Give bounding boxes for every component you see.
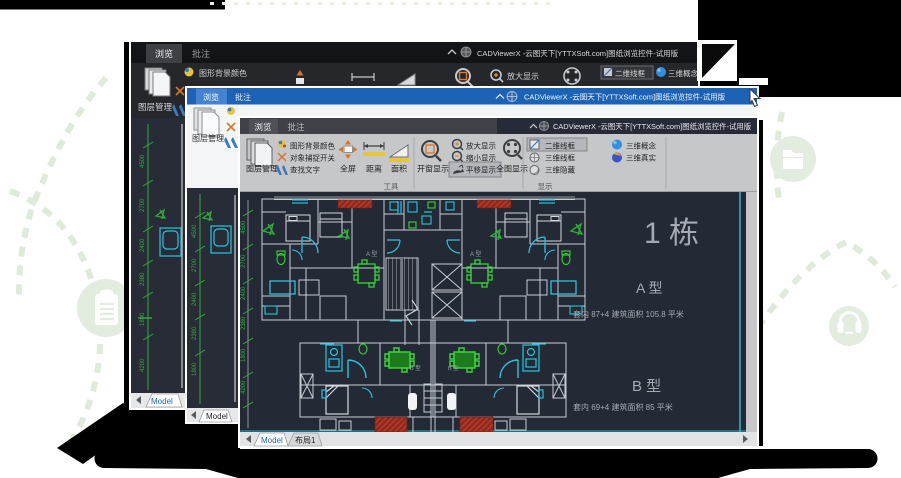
svg-text:2380: 2380 bbox=[140, 272, 146, 286]
svg-text:图形背景颜色: 图形背景颜色 bbox=[290, 141, 335, 151]
svg-text:浏览: 浏览 bbox=[254, 122, 271, 132]
svg-text:二维线框: 二维线框 bbox=[545, 141, 575, 151]
svg-text:B 型: B 型 bbox=[448, 364, 459, 372]
svg-text:CADViewerX -云图天下[YTTXSoft.com]: CADViewerX -云图天下[YTTXSoft.com]图纸浏览控件-试用版 bbox=[553, 122, 752, 131]
svg-text:1800: 1800 bbox=[140, 312, 146, 326]
svg-text:Model: Model bbox=[261, 436, 283, 445]
svg-text:平移显示: 平移显示 bbox=[466, 165, 496, 175]
svg-text:批注: 批注 bbox=[287, 122, 305, 132]
svg-text:CADViewerX -云图天下[YTTXSoft.com]: CADViewerX -云图天下[YTTXSoft.com]图纸浏览控件-试用版 bbox=[524, 92, 726, 102]
svg-text:三维真实: 三维真实 bbox=[626, 153, 656, 163]
svg-text:2700: 2700 bbox=[241, 254, 247, 268]
svg-text:缩小显示: 缩小显示 bbox=[466, 153, 496, 163]
svg-text:2400: 2400 bbox=[192, 292, 198, 306]
svg-text:Model: Model bbox=[151, 397, 173, 406]
svg-text:面积: 面积 bbox=[391, 164, 407, 174]
svg-text:B 型: B 型 bbox=[410, 364, 421, 372]
svg-text:A 型: A 型 bbox=[470, 250, 481, 258]
svg-text:二维线框: 二维线框 bbox=[615, 68, 645, 78]
svg-text:布局1: 布局1 bbox=[295, 435, 316, 445]
svg-text:2700: 2700 bbox=[140, 198, 146, 212]
svg-text:放大显示: 放大显示 bbox=[466, 141, 496, 151]
svg-text:浏览: 浏览 bbox=[203, 92, 219, 102]
svg-text:图层管理: 图层管理 bbox=[138, 102, 173, 112]
svg-text:三维隐藏: 三维隐藏 bbox=[545, 165, 575, 175]
svg-text:图形背景颜色: 图形背景颜色 bbox=[199, 68, 247, 78]
svg-text:全屏: 全屏 bbox=[340, 164, 356, 174]
svg-text:B 型: B 型 bbox=[632, 378, 661, 395]
svg-text:1 栋: 1 栋 bbox=[644, 217, 699, 250]
svg-text:工具: 工具 bbox=[384, 182, 399, 191]
svg-text:批注: 批注 bbox=[192, 48, 210, 59]
svg-text:CADViewerX -云图天下[YTTXSoft.com]: CADViewerX -云图天下[YTTXSoft.com]图纸浏览控件-试用版 bbox=[477, 48, 679, 58]
svg-text:图层管理: 图层管理 bbox=[192, 133, 224, 143]
svg-text:三维线框: 三维线框 bbox=[545, 153, 575, 163]
svg-text:Model: Model bbox=[206, 412, 228, 421]
svg-text:2700: 2700 bbox=[192, 258, 198, 272]
svg-text:A 型: A 型 bbox=[636, 280, 662, 296]
svg-text:2400: 2400 bbox=[140, 238, 146, 252]
svg-text:批注: 批注 bbox=[235, 92, 251, 102]
svg-text:4200: 4200 bbox=[241, 380, 247, 394]
svg-text:距离: 距离 bbox=[366, 164, 382, 174]
svg-text:放大显示: 放大显示 bbox=[507, 71, 539, 81]
svg-text:4500: 4500 bbox=[140, 154, 146, 168]
svg-text:三维概念: 三维概念 bbox=[626, 141, 656, 151]
svg-text:4500: 4500 bbox=[241, 220, 247, 234]
svg-text:查找文字: 查找文字 bbox=[290, 165, 320, 175]
svg-text:开窗显示: 开窗显示 bbox=[417, 164, 449, 174]
svg-text:A 型: A 型 bbox=[366, 250, 377, 258]
svg-text:2380: 2380 bbox=[241, 316, 247, 330]
svg-text:图层管理: 图层管理 bbox=[246, 164, 278, 174]
svg-text:4200: 4200 bbox=[140, 358, 146, 372]
svg-text:显示: 显示 bbox=[538, 182, 553, 191]
svg-text:2400: 2400 bbox=[241, 286, 247, 300]
svg-text:2380: 2380 bbox=[192, 326, 198, 340]
svg-text:三维概念: 三维概念 bbox=[668, 68, 698, 78]
svg-text:4500: 4500 bbox=[192, 224, 198, 238]
svg-text:套内 87+4 建筑面积 105.8 平米: 套内 87+4 建筑面积 105.8 平米 bbox=[573, 309, 684, 319]
svg-text:浏览: 浏览 bbox=[155, 48, 173, 59]
svg-text:1800: 1800 bbox=[241, 348, 247, 362]
svg-text:1800: 1800 bbox=[192, 362, 198, 376]
svg-text:对象捕捉开关: 对象捕捉开关 bbox=[290, 153, 335, 163]
svg-text:套内 69+4 建筑面积 85 平米: 套内 69+4 建筑面积 85 平米 bbox=[573, 402, 673, 412]
